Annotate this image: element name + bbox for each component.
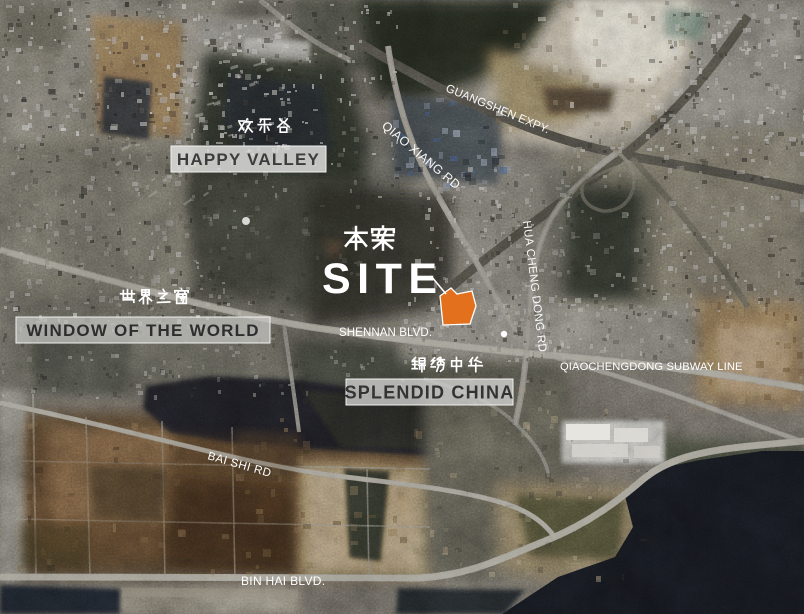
- svg-text:WINDOW OF THE WORLD: WINDOW OF THE WORLD: [26, 321, 259, 340]
- svg-text:SHENNAN BLVD.: SHENNAN BLVD.: [339, 327, 432, 339]
- svg-text:SITE: SITE: [322, 255, 444, 303]
- svg-text:BIN HAI BLVD.: BIN HAI BLVD.: [241, 574, 325, 588]
- svg-text:HAPPY VALLEY: HAPPY VALLEY: [177, 150, 320, 169]
- svg-text:QIAOCHENGDONG SUBWAY LINE: QIAOCHENGDONG SUBWAY LINE: [560, 361, 743, 373]
- svg-text:SPLENDID CHINA: SPLENDID CHINA: [345, 382, 515, 402]
